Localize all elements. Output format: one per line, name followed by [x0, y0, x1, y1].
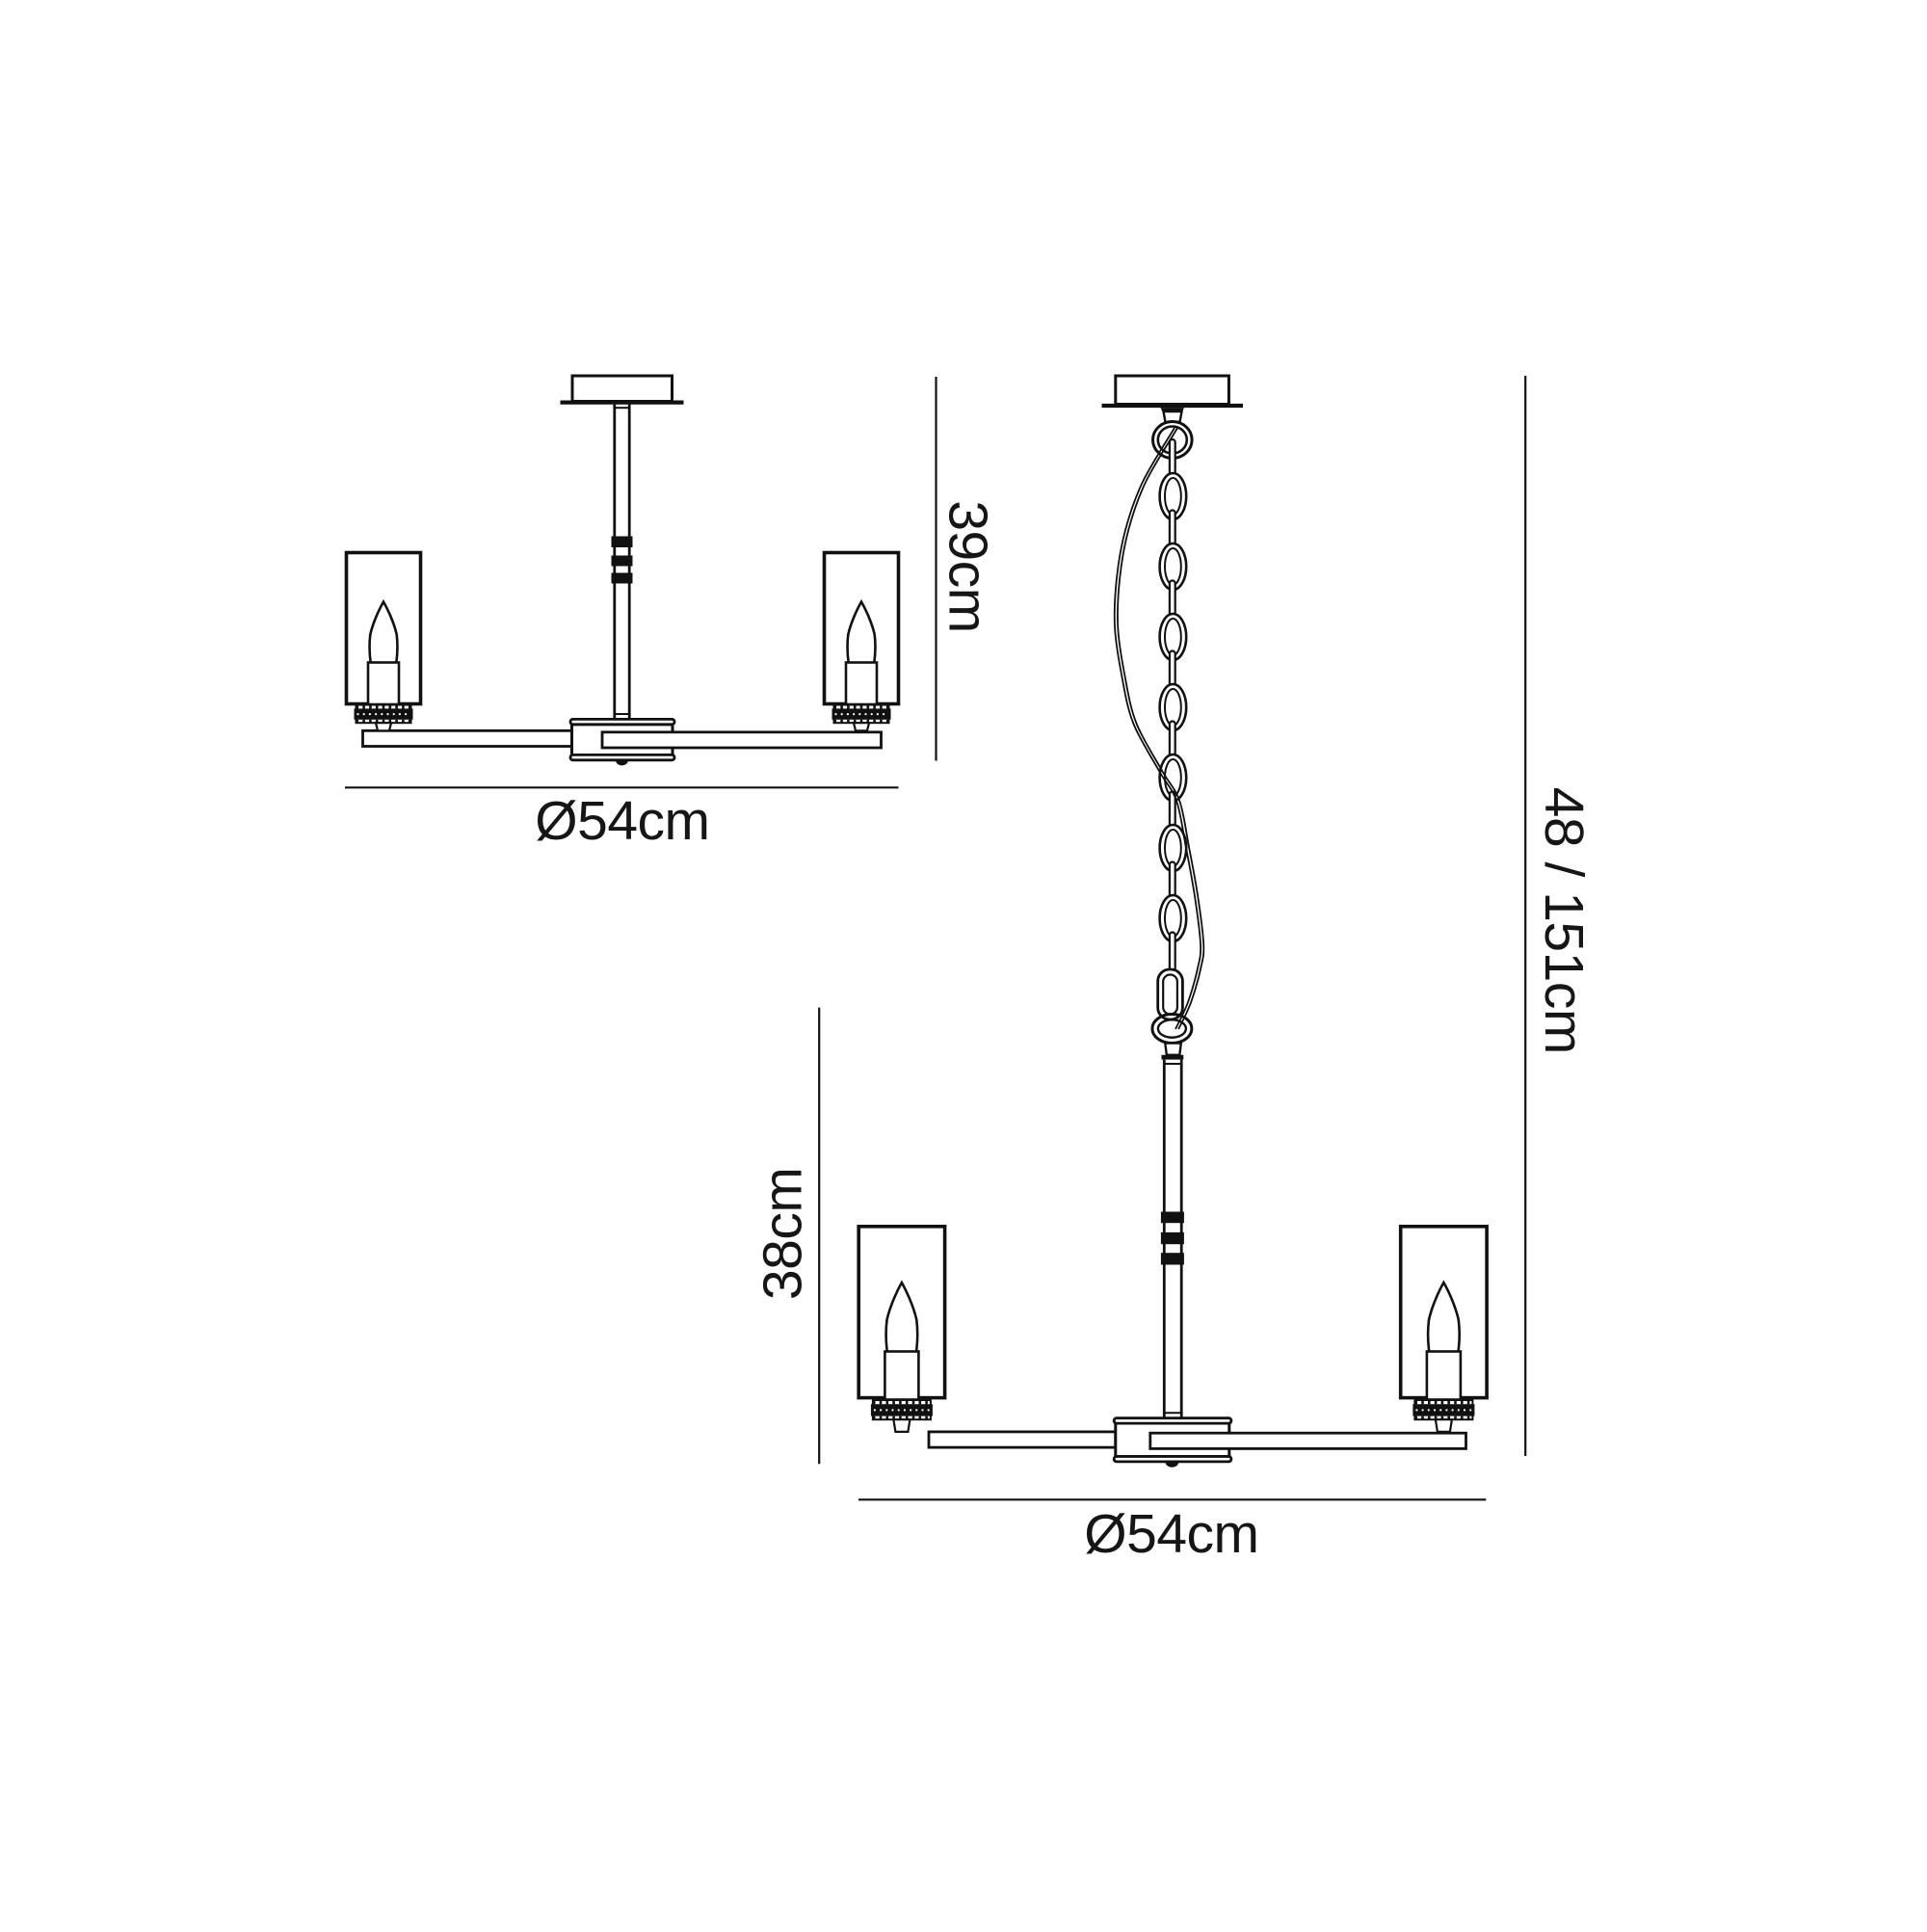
- svg-text:39cm: 39cm: [937, 500, 998, 632]
- svg-text:38cm: 38cm: [752, 1168, 813, 1300]
- svg-text:Ø54cm: Ø54cm: [535, 790, 709, 852]
- svg-text:Ø54cm: Ø54cm: [1084, 1503, 1258, 1565]
- svg-text:48 / 151cm: 48 / 151cm: [1533, 787, 1595, 1054]
